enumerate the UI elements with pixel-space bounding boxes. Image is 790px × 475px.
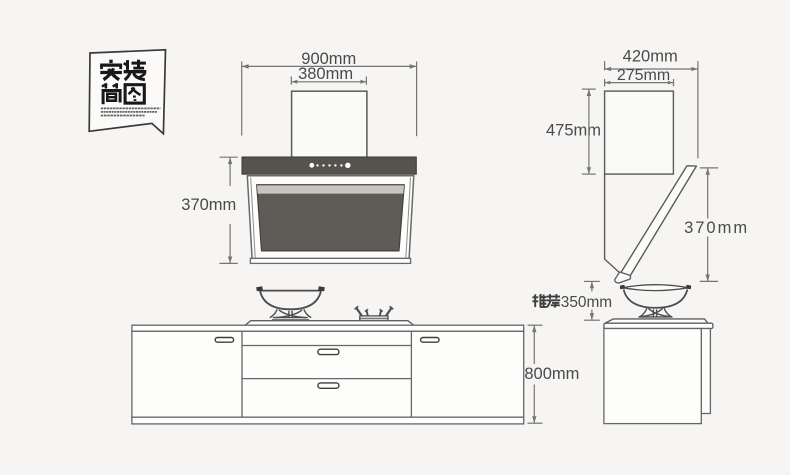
svg-text:350mm: 350mm xyxy=(561,294,612,311)
svg-text:370mm: 370mm xyxy=(684,219,749,237)
svg-text:420mm: 420mm xyxy=(623,48,678,66)
svg-text:800mm: 800mm xyxy=(524,365,579,383)
svg-text:475mm: 475mm xyxy=(546,122,601,140)
svg-text:380mm: 380mm xyxy=(298,65,353,83)
svg-text:370mm: 370mm xyxy=(181,196,236,214)
svg-text:275mm: 275mm xyxy=(617,67,670,84)
